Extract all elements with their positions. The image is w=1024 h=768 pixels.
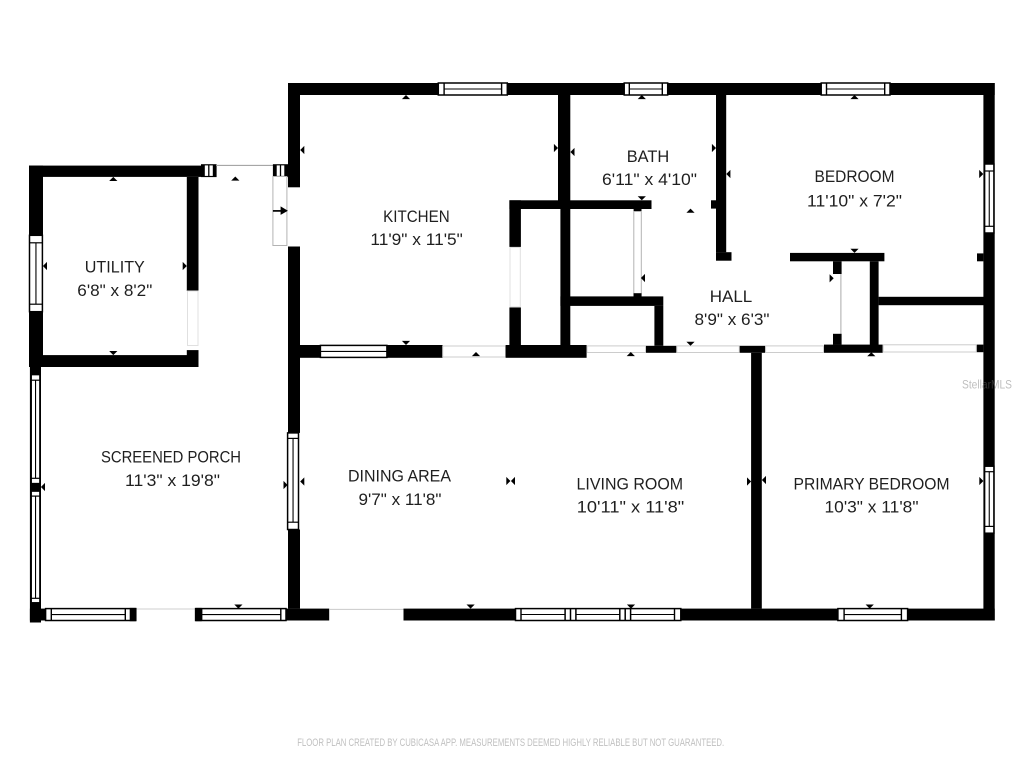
svg-text:UTILITY: UTILITY	[85, 259, 145, 277]
svg-text:HALL: HALL	[710, 288, 753, 306]
svg-text:11'3" x 19'8": 11'3" x 19'8"	[125, 472, 220, 490]
svg-text:BATH: BATH	[627, 148, 670, 166]
svg-text:11'9" x 11'5": 11'9" x 11'5"	[370, 231, 463, 249]
svg-text:6'11" x 4'10": 6'11" x 4'10"	[602, 171, 697, 189]
svg-text:6'8" x 8'2": 6'8" x 8'2"	[77, 282, 152, 300]
svg-text:KITCHEN: KITCHEN	[383, 208, 450, 226]
svg-text:DINING AREA: DINING AREA	[348, 468, 451, 486]
svg-text:8'9" x 6'3": 8'9" x 6'3"	[695, 311, 770, 329]
svg-text:LIVING ROOM: LIVING ROOM	[577, 476, 684, 494]
svg-text:BEDROOM: BEDROOM	[815, 168, 895, 186]
svg-text:FLOOR PLAN CREATED BY CUBICASA: FLOOR PLAN CREATED BY CUBICASA APP. MEAS…	[297, 737, 724, 749]
svg-text:11'10" x 7'2": 11'10" x 7'2"	[807, 193, 902, 211]
svg-text:10'3" x 11'8": 10'3" x 11'8"	[825, 499, 919, 517]
svg-text:SCREENED PORCH: SCREENED PORCH	[101, 449, 241, 467]
svg-text:PRIMARY BEDROOM: PRIMARY BEDROOM	[794, 476, 950, 494]
svg-text:10'11" x 11'8": 10'11" x 11'8"	[577, 499, 685, 517]
svg-text:9'7" x 11'8": 9'7" x 11'8"	[359, 491, 442, 509]
svg-text:StellarMLS: StellarMLS	[962, 380, 1012, 392]
